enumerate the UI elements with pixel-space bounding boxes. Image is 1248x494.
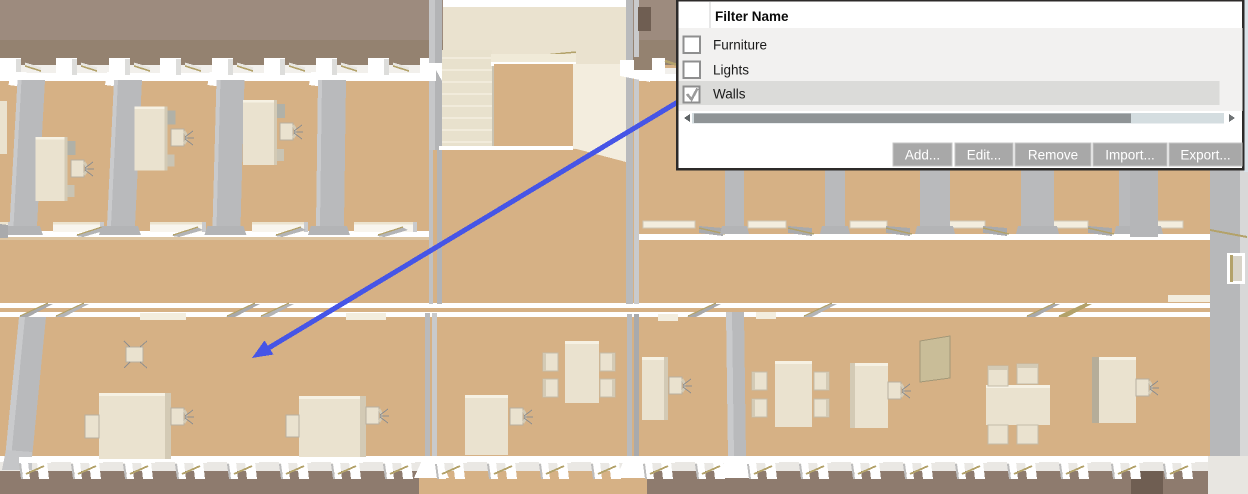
- svg-text:Edit...: Edit...: [967, 148, 1002, 163]
- svg-text:Filter Name: Filter Name: [715, 9, 789, 24]
- svg-text:Import...: Import...: [1105, 148, 1155, 163]
- svg-text:Add...: Add...: [905, 148, 940, 163]
- svg-text:Remove: Remove: [1028, 148, 1078, 163]
- svg-text:Walls: Walls: [713, 87, 746, 102]
- svg-text:Lights: Lights: [713, 63, 749, 78]
- svg-text:Export...: Export...: [1180, 148, 1230, 163]
- svg-text:Furniture: Furniture: [713, 38, 767, 53]
